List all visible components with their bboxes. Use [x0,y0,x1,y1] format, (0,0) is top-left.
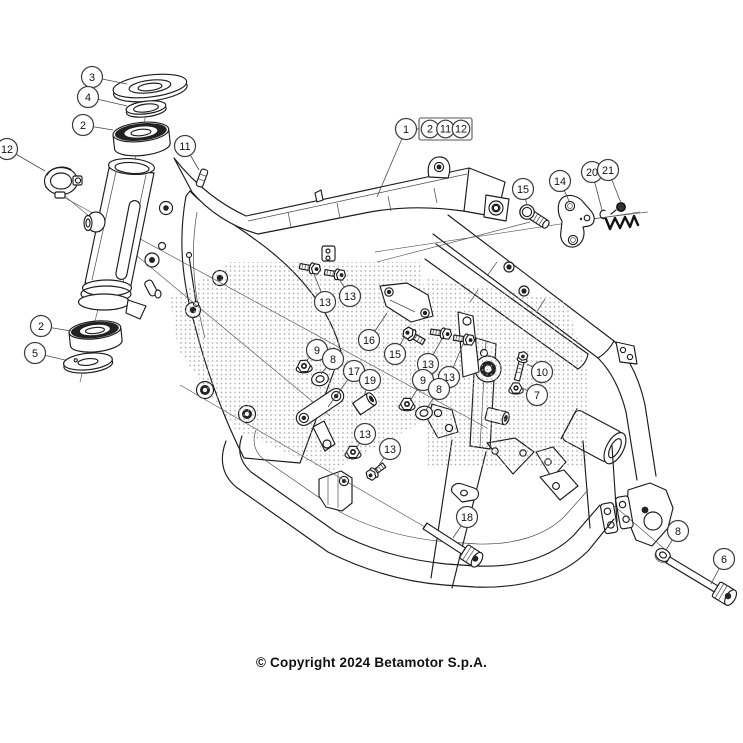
roll-pin-part-11 [196,168,209,187]
parts-diagram-page: 3421211115142021251313981615131317199810… [0,0,743,743]
callout-number: 14 [554,176,566,188]
upper-bearing-part-2 [112,120,171,159]
callout-number: 2 [427,124,433,136]
callout-balloon-13: 13 [355,424,376,445]
callout-number: 5 [32,348,38,360]
callout-number: 16 [363,335,375,347]
callout-number: 15 [389,349,401,361]
callout-balloon-14: 14 [550,171,571,192]
callout-balloon-21: 21 [598,160,619,181]
callout-balloon-4: 4 [78,87,99,108]
callout-balloon-12: 12 [0,139,18,160]
callout-number: 15 [517,184,529,196]
callout-balloon-8: 8 [323,349,344,370]
lower-bearing-part-2 [68,319,123,355]
bracket-part-14 [558,196,594,248]
callout-balloon-1: 1 [396,119,417,140]
callout-number: 12 [455,124,467,136]
lower-washer-part-5 [63,351,114,375]
callout-balloon-7: 7 [527,385,548,406]
callout-balloon-6: 6 [714,549,735,570]
callout-balloon-13: 13 [340,286,361,307]
callout-number: 11 [179,141,190,153]
bolt-part-13 [364,461,387,482]
callout-number: 8 [675,526,681,538]
callout-number: 2 [38,321,44,333]
callout-number: 9 [420,375,426,387]
callout-number: 12 [1,144,13,156]
callout-balloon-5: 5 [25,343,46,364]
callout-balloon-15: 15 [385,344,406,365]
callout-balloon-15: 15 [513,179,534,200]
callout-number: 18 [461,512,473,524]
callout-number: 1 [403,124,409,136]
frame-exploded-diagram: 3421211115142021251313981615131317199810… [0,0,743,743]
callout-balloon-2: 2 [31,316,52,337]
callout-number: 6 [721,554,727,566]
callout-number: 13 [359,429,371,441]
callout-balloon-13: 13 [380,439,401,460]
callout-balloon-16: 16 [359,330,380,351]
callout-number: 21 [602,165,614,177]
steering-tube [79,157,155,319]
callout-balloon-2: 2 [73,115,94,136]
callout-number: 8 [330,354,336,366]
spring-part-21 [606,216,638,229]
screw-part-21 [611,203,625,214]
callout-number: 13 [384,444,396,456]
right-side-parts [520,196,638,248]
callout-number: 10 [536,367,548,379]
callout-number: 13 [344,291,356,303]
callout-balloon-8: 8 [429,379,450,400]
callout-number: 4 [85,92,91,104]
callout-balloon-13: 13 [315,292,336,313]
callout-number: 11 [440,124,451,136]
callout-number: 17 [348,366,360,378]
callout-group-box: 21112 [419,118,472,140]
callout-number: 9 [314,345,320,357]
callout-number: 3 [89,72,95,84]
callout-number: 2 [80,120,86,132]
callout-balloon-3: 3 [82,67,103,88]
callout-balloon-8: 8 [668,521,689,542]
callout-number: 7 [534,390,540,402]
callout-balloon-10: 10 [532,362,553,383]
top-washer-part-3 [112,71,189,106]
bottom-bolts [421,519,739,607]
callout-number: 13 [319,297,331,309]
callout-balloon-11: 11 [175,136,196,157]
callout-number: 20 [586,167,598,179]
clamp-part-12 [45,167,83,198]
bolt-part-15-upper [520,205,551,230]
callout-number: 19 [364,375,376,387]
copyright-text: © Copyright 2024 Betamotor S.p.A. [0,655,743,670]
callout-number: 8 [436,384,442,396]
callout-balloon-18: 18 [457,507,478,528]
callout-balloon-19: 19 [360,370,381,391]
